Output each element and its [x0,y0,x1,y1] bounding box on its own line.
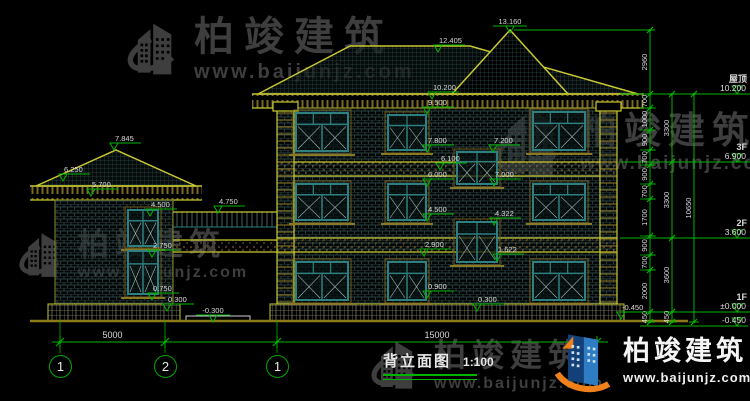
svg-text:7.200: 7.200 [494,136,513,145]
brand-logo: 柏竣建筑 www.baijunjz.com [552,326,750,396]
axis-bubble-1: 1 [49,355,72,378]
svg-text:900: 900 [640,168,649,181]
svg-text:900: 900 [640,134,649,147]
svg-text:15000: 15000 [424,330,449,340]
svg-text:4.322: 4.322 [495,209,514,218]
svg-text:2960: 2960 [640,54,649,71]
svg-text:1000: 1000 [640,111,649,128]
svg-text:0.300: 0.300 [168,295,187,304]
svg-text:13.160: 13.160 [499,17,522,26]
svg-text:4.500: 4.500 [428,205,447,214]
axis-bubble-3: 1 [266,355,289,378]
svg-text:-0.300: -0.300 [202,306,223,315]
title-text: 背立面图 [383,350,451,371]
svg-text:-0.450: -0.450 [722,315,746,325]
svg-text:700: 700 [640,151,649,164]
svg-text:3600: 3600 [662,267,671,284]
svg-text:700: 700 [640,256,649,269]
cad-canvas: 柏竣建筑 www.baijunjz.com 柏竣建筑 www.baijunjz.… [0,0,750,401]
svg-text:6.100: 6.100 [441,154,460,163]
svg-text:0.900: 0.900 [428,282,447,291]
svg-text:2000: 2000 [640,283,649,300]
svg-text:5000: 5000 [102,330,122,340]
svg-text:3300: 3300 [662,120,671,137]
svg-text:450: 450 [662,311,671,324]
svg-text:7.845: 7.845 [115,134,134,143]
svg-text:±0.000: ±0.000 [720,301,746,311]
svg-text:5.700: 5.700 [92,180,111,189]
svg-text:12.405: 12.405 [439,36,462,45]
svg-text:10.200: 10.200 [720,83,746,93]
title-underline [383,374,477,380]
svg-text:6.250: 6.250 [64,165,83,174]
svg-text:7.800: 7.800 [428,136,447,145]
svg-text:1.622: 1.622 [498,245,517,254]
svg-text:0.300: 0.300 [478,295,497,304]
svg-text:450: 450 [640,311,649,324]
svg-text:700: 700 [640,95,649,108]
svg-text:900: 900 [640,239,649,252]
drawing-title: 背立面图 1:100 [383,350,494,380]
svg-text:700: 700 [640,185,649,198]
svg-text:1700: 1700 [640,209,649,226]
svg-text:7.000: 7.000 [495,170,514,179]
floor-markers: 屋顶10.2003F6.9002F3.6001F±0.000-0.450 [696,74,748,326]
svg-text:10650: 10650 [684,198,693,219]
svg-text:3.600: 3.600 [725,227,747,237]
title-scale: 1:100 [463,355,494,369]
svg-text:3300: 3300 [662,192,671,209]
svg-text:-0.450: -0.450 [622,303,643,312]
brand-logo-icon [552,326,614,396]
axis-bubble-2: 2 [154,355,177,378]
svg-text:10.200: 10.200 [433,83,456,92]
svg-text:4.750: 4.750 [219,197,238,206]
svg-text:2.900: 2.900 [425,240,444,249]
svg-text:4.500: 4.500 [151,200,170,209]
svg-text:9.500: 9.500 [428,98,447,107]
svg-text:2.750: 2.750 [153,241,172,250]
brand-logo-text: 柏竣建筑 [623,338,750,365]
svg-text:6.900: 6.900 [725,151,747,161]
brand-logo-site: www.baijunjz.com [623,371,750,384]
svg-text:6.000: 6.000 [428,170,447,179]
svg-text:0.750: 0.750 [153,284,172,293]
